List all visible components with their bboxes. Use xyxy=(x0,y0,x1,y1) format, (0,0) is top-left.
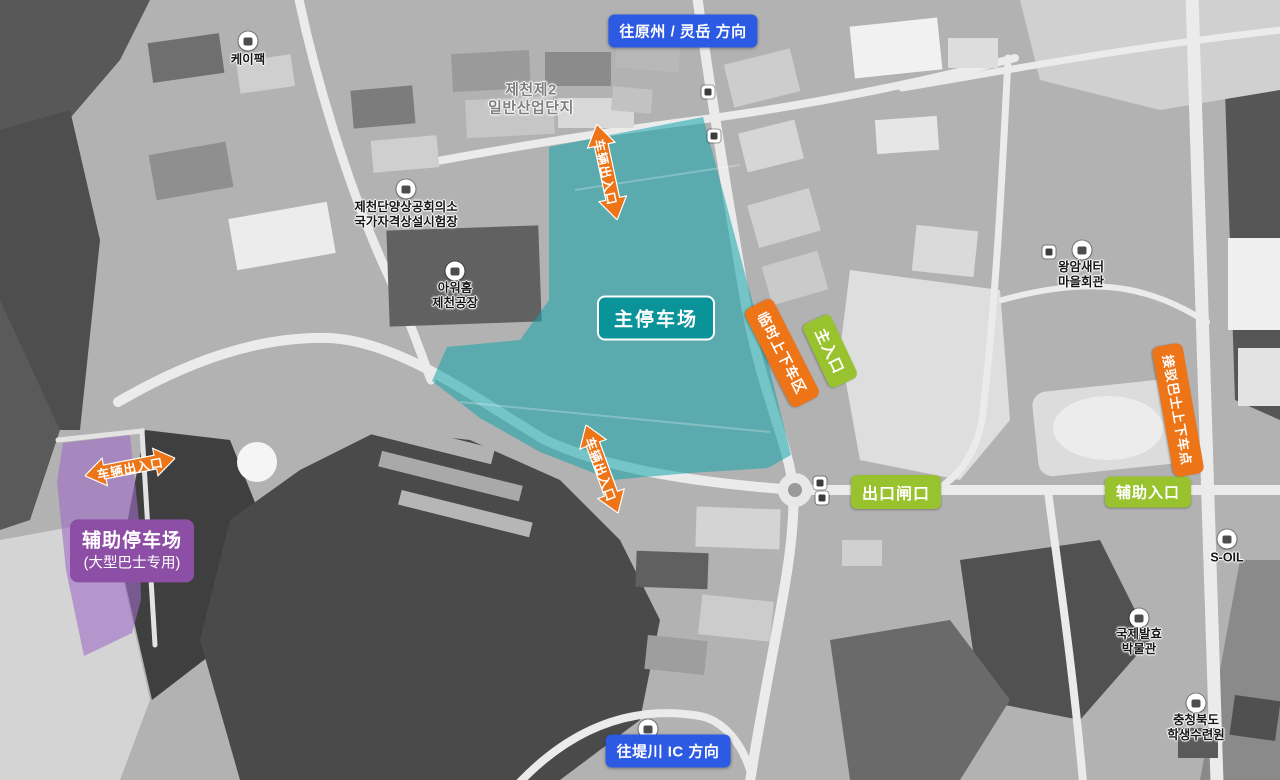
poi-label-fermentation-museum: 국제발효박물관 xyxy=(1116,627,1162,658)
poi-icon xyxy=(239,32,258,51)
aux-entrance-label: 辅助入口 xyxy=(1105,477,1191,508)
main-parking-label: 主停车场 xyxy=(597,296,715,341)
poi-label-soil-station: S-OIL xyxy=(1210,550,1243,565)
poi-icon xyxy=(1073,241,1092,260)
satellite-background xyxy=(0,0,1280,780)
bus-stop-icon xyxy=(708,130,721,143)
poi-label-ourhome-factory: 아워홈제천공장 xyxy=(432,281,478,312)
bus-stop-icon xyxy=(816,492,829,505)
direction-badge-south: 往堤川 IC 方向 xyxy=(606,735,731,768)
exit-gate-label: 出口闸口 xyxy=(851,475,941,509)
poi-icon xyxy=(446,262,465,281)
aux-parking-label: 辅助停车场 (大型巴士专用) xyxy=(70,519,194,582)
map-canvas[interactable]: 케이팩 제천제2일반산업단지 제천단양상공회의소국가자격상설시험장 아워홈제천공… xyxy=(0,0,1280,780)
bus-stop-icon xyxy=(814,477,827,490)
poi-icon xyxy=(397,180,416,199)
bus-stop-icon xyxy=(702,86,715,99)
poi-label-industrial-complex: 제천제2일반산업단지 xyxy=(488,82,574,119)
poi-label-village-hall: 왕암새터마을회관 xyxy=(1058,260,1104,291)
poi-label-chamber-test-center: 제천단양상공회의소국가자격상설시험장 xyxy=(354,200,458,231)
poi-icon xyxy=(1218,530,1237,549)
poi-label-kpac: 케이팩 xyxy=(231,52,266,67)
poi-label-student-center: 충청북도학생수련원 xyxy=(1167,713,1225,744)
poi-icon xyxy=(1130,609,1149,628)
poi-icon xyxy=(1187,694,1206,713)
bus-stop-icon xyxy=(1043,246,1056,259)
direction-badge-north: 往原州 / 灵岳 方向 xyxy=(608,15,757,48)
